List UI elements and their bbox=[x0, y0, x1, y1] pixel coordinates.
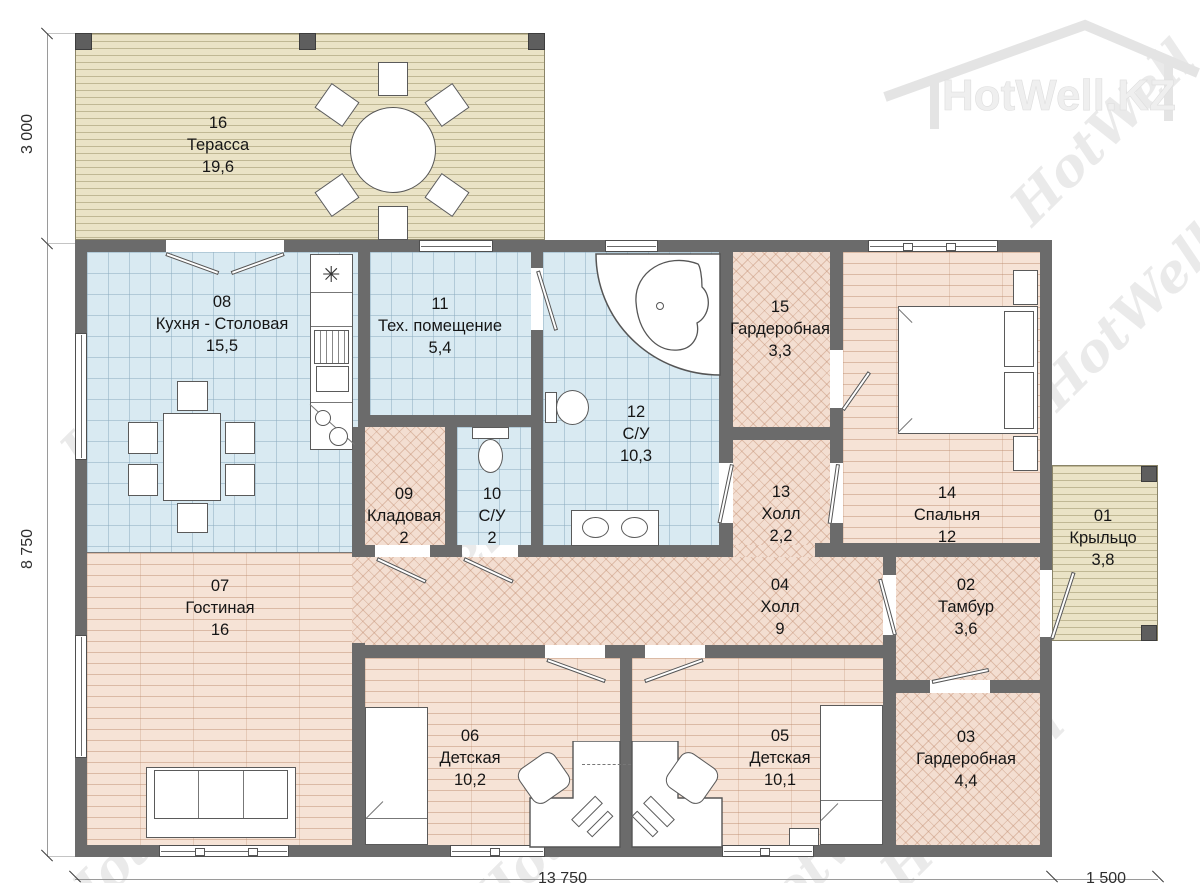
room-label-bedroom: 14 Спальня 12 bbox=[914, 482, 980, 548]
window bbox=[868, 240, 998, 252]
room-name: Тамбур bbox=[938, 596, 994, 618]
dining-chair bbox=[225, 464, 255, 496]
room-number: 06 bbox=[439, 725, 500, 747]
wall bbox=[1040, 637, 1052, 857]
bedside-table bbox=[789, 828, 819, 846]
room-area: 2 bbox=[479, 527, 506, 549]
stove-burner bbox=[315, 410, 331, 426]
window bbox=[419, 240, 493, 252]
terrace-chair bbox=[378, 206, 408, 240]
room-label-bathroom-main: 12 С/У 10,3 bbox=[620, 401, 652, 467]
room-name: Гардеробная bbox=[730, 318, 830, 340]
room-area: 4,4 bbox=[916, 770, 1016, 792]
room-name: Детская bbox=[749, 747, 810, 769]
dimension-tick bbox=[69, 870, 81, 882]
room-area: 5,4 bbox=[378, 337, 502, 359]
wall bbox=[605, 645, 645, 658]
porch-post bbox=[1141, 466, 1157, 482]
room-area: 2,2 bbox=[762, 525, 801, 547]
room-number: 14 bbox=[914, 482, 980, 504]
nightstand bbox=[1013, 270, 1038, 305]
wall bbox=[493, 240, 605, 252]
room-area: 19,6 bbox=[187, 156, 249, 178]
window bbox=[75, 333, 87, 460]
dimension-house-width: 13 750 bbox=[520, 870, 605, 883]
room-name: Терасса bbox=[187, 134, 249, 156]
terrace-post bbox=[528, 33, 545, 50]
room-number: 01 bbox=[1069, 505, 1136, 527]
wall bbox=[531, 252, 543, 268]
sink-basin bbox=[582, 517, 609, 538]
terrace-round-table bbox=[350, 107, 436, 193]
room-label-tech-room: 11 Тех. помещение 5,4 bbox=[378, 293, 502, 359]
dimension-tick bbox=[1046, 870, 1058, 882]
room-label-hall-04: 04 Холл 9 bbox=[761, 574, 800, 640]
window bbox=[159, 845, 289, 857]
dining-chair bbox=[225, 422, 255, 454]
wall bbox=[830, 252, 843, 350]
terrace-post bbox=[75, 33, 92, 50]
room-number: 08 bbox=[156, 291, 289, 313]
room-number: 05 bbox=[749, 725, 810, 747]
floor-hall-04 bbox=[352, 557, 883, 645]
room-number: 03 bbox=[916, 726, 1016, 748]
dimension-porch-width: 1 500 bbox=[1076, 870, 1136, 883]
room-label-kids-06: 06 Детская 10,2 bbox=[439, 725, 500, 791]
door-leaf-bathroom bbox=[718, 464, 734, 524]
dimension-line-left bbox=[47, 33, 48, 856]
dining-chair bbox=[128, 464, 158, 496]
room-area: 2 bbox=[367, 527, 441, 549]
room-label-hall-13: 13 Холл 2,2 bbox=[762, 481, 801, 547]
sofa-cushion-divider bbox=[198, 771, 199, 818]
toilet-tank bbox=[472, 427, 509, 439]
terrace-chair bbox=[378, 62, 408, 96]
pillow bbox=[1004, 372, 1034, 429]
room-area: 16 bbox=[185, 619, 254, 641]
room-label-wardrobe-15: 15 Гардеробная 3,3 bbox=[730, 296, 830, 362]
logo-left-post bbox=[930, 77, 939, 129]
kitchen-sink-drainer bbox=[314, 330, 349, 364]
wall bbox=[814, 845, 1052, 857]
room-number: 11 bbox=[378, 293, 502, 315]
room-label-porch: 01 Крыльцо 3,8 bbox=[1069, 505, 1136, 571]
kitchen-appliance bbox=[316, 366, 349, 392]
counter-divider bbox=[311, 402, 352, 403]
wall bbox=[719, 523, 733, 545]
toilet-bowl bbox=[556, 390, 589, 425]
wall bbox=[352, 645, 545, 658]
dining-chair bbox=[128, 422, 158, 454]
window-latch bbox=[903, 243, 913, 251]
window-latch bbox=[248, 848, 258, 856]
wall bbox=[358, 415, 543, 427]
extension-line bbox=[47, 33, 75, 34]
porch-post bbox=[1141, 625, 1157, 641]
room-area: 3,6 bbox=[938, 618, 994, 640]
toilet-bowl bbox=[478, 439, 503, 473]
terrace-post bbox=[299, 33, 316, 50]
terrace-deck bbox=[75, 33, 545, 240]
room-label-kitchen: 08 Кухня - Столовая 15,5 bbox=[156, 291, 289, 357]
room-area: 3,8 bbox=[1069, 549, 1136, 571]
wall bbox=[830, 523, 843, 545]
room-name: Холл bbox=[762, 503, 801, 525]
wall bbox=[531, 330, 543, 545]
wall bbox=[75, 758, 87, 857]
room-area: 10,1 bbox=[749, 769, 810, 791]
nightstand bbox=[1013, 436, 1038, 471]
sofa-seat bbox=[154, 770, 288, 819]
room-label-wardrobe-03: 03 Гардеробная 4,4 bbox=[916, 726, 1016, 792]
dining-chair bbox=[177, 503, 208, 533]
room-number: 13 bbox=[762, 481, 801, 503]
room-label-living-room: 07 Гостиная 16 bbox=[185, 575, 254, 641]
extension-line bbox=[47, 243, 75, 244]
room-area: 3,3 bbox=[730, 340, 830, 362]
room-area: 10,2 bbox=[439, 769, 500, 791]
room-label-terrace: 16 Терасса 19,6 bbox=[187, 112, 249, 178]
floor-transition-line bbox=[87, 552, 352, 553]
room-name: Тех. помещение bbox=[378, 315, 502, 337]
wall bbox=[75, 845, 159, 857]
room-area: 12 bbox=[914, 526, 980, 548]
room-name: Гостиная bbox=[185, 597, 254, 619]
wall bbox=[990, 680, 1040, 693]
room-name: С/У bbox=[620, 423, 652, 445]
room-area: 15,5 bbox=[156, 335, 289, 357]
logo-text: HotWell.KZ bbox=[942, 71, 1176, 120]
room-number: 10 bbox=[479, 483, 506, 505]
dimension-house-height: 8 750 bbox=[19, 509, 37, 589]
bed-divider bbox=[821, 800, 882, 801]
wall bbox=[75, 240, 87, 333]
room-name: С/У bbox=[479, 505, 506, 527]
room-name: Холл bbox=[761, 596, 800, 618]
room-number: 07 bbox=[185, 575, 254, 597]
window-latch bbox=[760, 848, 770, 856]
room-label-vestibule: 02 Тамбур 3,6 bbox=[938, 574, 994, 640]
wall bbox=[352, 643, 365, 845]
dimension-line-bottom bbox=[75, 879, 1158, 880]
room-name: Крыльцо bbox=[1069, 527, 1136, 549]
window-latch bbox=[195, 848, 205, 856]
stove-burner bbox=[329, 427, 348, 446]
wall bbox=[289, 845, 450, 857]
wall bbox=[896, 680, 930, 693]
dimension-terrace-height: 3 000 bbox=[19, 94, 37, 174]
wall bbox=[75, 240, 166, 252]
single-bed bbox=[365, 707, 428, 845]
sofa-cushion-divider bbox=[243, 771, 244, 818]
wall bbox=[719, 427, 843, 440]
counter-divider bbox=[311, 326, 352, 327]
room-label-wc-small: 10 С/У 2 bbox=[479, 483, 506, 549]
wall bbox=[445, 427, 457, 545]
dimension-tick bbox=[1152, 870, 1164, 882]
room-name: Детская bbox=[439, 747, 500, 769]
wall bbox=[883, 557, 896, 575]
room-number: 16 bbox=[187, 112, 249, 134]
corner-bathtub bbox=[594, 252, 722, 378]
wall bbox=[1040, 240, 1052, 570]
window bbox=[75, 635, 87, 758]
room-label-storage: 09 Кладовая 2 bbox=[367, 483, 441, 549]
room-label-kids-05: 05 Детская 10,1 bbox=[749, 725, 810, 791]
pillow bbox=[1004, 311, 1034, 367]
hotwell-logo: HotWell.KZ bbox=[880, 15, 1200, 135]
single-bed bbox=[820, 705, 883, 845]
wall bbox=[658, 240, 868, 252]
room-area: 9 bbox=[761, 618, 800, 640]
room-name: Кухня - Столовая bbox=[156, 313, 289, 335]
sink-basin bbox=[621, 517, 648, 538]
vent-icon: ✳ bbox=[322, 262, 340, 288]
wall bbox=[284, 240, 419, 252]
bed-divider bbox=[366, 818, 427, 819]
room-number: 04 bbox=[761, 574, 800, 596]
room-number: 12 bbox=[620, 401, 652, 423]
extension-line bbox=[47, 856, 75, 857]
window-latch bbox=[490, 848, 500, 856]
window-latch bbox=[946, 243, 956, 251]
room-number: 15 bbox=[730, 296, 830, 318]
wall bbox=[75, 460, 87, 635]
dining-chair bbox=[177, 381, 208, 411]
floor-plan: HotWell HotWell HotWell HotWell HotWell … bbox=[0, 0, 1200, 883]
corner-desk bbox=[631, 741, 723, 848]
wall bbox=[705, 645, 896, 658]
window bbox=[605, 240, 658, 252]
room-name: Гардеробная bbox=[916, 748, 1016, 770]
room-name: Кладовая bbox=[367, 505, 441, 527]
room-area: 10,3 bbox=[620, 445, 652, 467]
counter-divider bbox=[311, 292, 352, 293]
room-number: 02 bbox=[938, 574, 994, 596]
wall bbox=[518, 545, 733, 557]
room-number: 09 bbox=[367, 483, 441, 505]
dining-table bbox=[163, 413, 221, 501]
wall bbox=[358, 252, 370, 427]
room-name: Спальня bbox=[914, 504, 980, 526]
wall bbox=[883, 635, 896, 845]
